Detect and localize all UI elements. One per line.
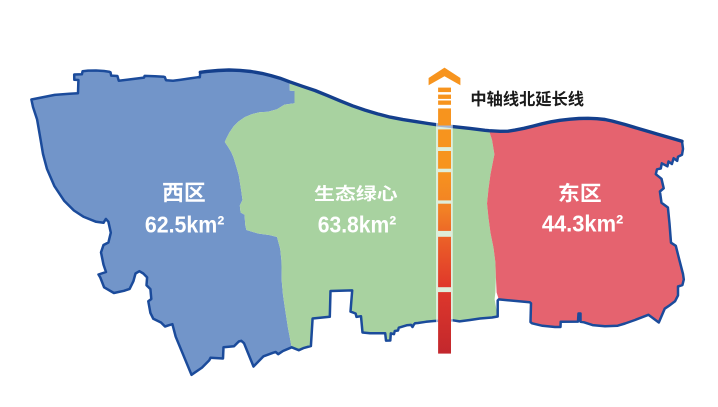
svg-text:44.3km²: 44.3km² (542, 211, 624, 237)
svg-text:63.8km²: 63.8km² (318, 212, 397, 238)
svg-text:62.5km²: 62.5km² (145, 212, 225, 238)
